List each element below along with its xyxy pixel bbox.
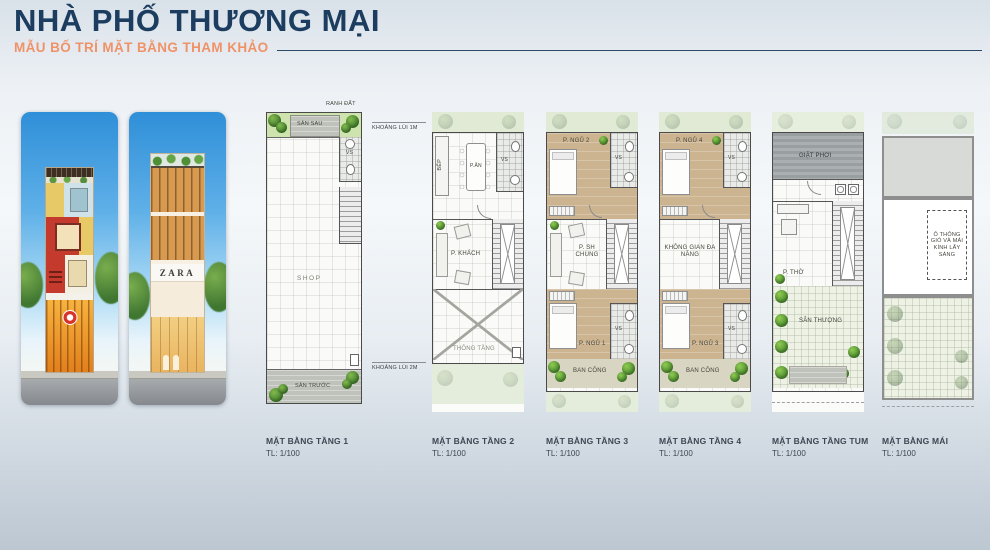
sink-icon bbox=[510, 175, 520, 185]
tree-icon bbox=[437, 370, 453, 386]
shrub-icon bbox=[775, 366, 788, 379]
grass-strip bbox=[546, 112, 638, 132]
room-label: THÔNG TẦNG bbox=[453, 346, 495, 352]
page-subtitle: MẪU BỐ TRÍ MẶT BẰNG THAM KHẢO bbox=[14, 40, 269, 55]
tree-icon bbox=[502, 115, 516, 129]
plan-title: MẶT BẰNG TẦNG 2 bbox=[432, 436, 542, 446]
tree-icon bbox=[729, 115, 743, 129]
grass-strip bbox=[432, 112, 524, 132]
road bbox=[21, 379, 118, 405]
bed bbox=[549, 149, 577, 195]
staircase bbox=[719, 219, 750, 289]
balcony-zone: BAN CÔNG bbox=[660, 359, 750, 388]
bedroom-zone: P. NGỦ 2 VS bbox=[547, 133, 637, 220]
tree-icon bbox=[438, 114, 453, 129]
plan-scale: TL: 1/100 bbox=[546, 449, 656, 458]
wardrobe bbox=[662, 291, 688, 301]
room-label: P. THỜ bbox=[783, 270, 804, 276]
wardrobe bbox=[549, 206, 575, 216]
shrub-icon bbox=[775, 290, 788, 303]
bedroom-zone: P. NGỦ 1 VS bbox=[547, 289, 637, 360]
room-label: VS bbox=[615, 326, 622, 332]
render-photo-zara-building: ZARA bbox=[129, 112, 226, 405]
backyard-zone: SÂN SAU bbox=[267, 113, 361, 138]
tree-icon bbox=[887, 114, 902, 129]
worship-zone: P. THỜ bbox=[773, 201, 863, 287]
plan-caption: MẶT BẰNG TẦNG 4 TL: 1/100 bbox=[659, 436, 769, 458]
staircase bbox=[492, 219, 523, 289]
shopfront-glass bbox=[151, 317, 204, 372]
toilet-icon bbox=[625, 310, 634, 321]
plan-title: MẶT BẰNG MÁI bbox=[882, 436, 990, 446]
shrub-icon bbox=[775, 314, 788, 327]
stair-core bbox=[840, 207, 856, 280]
roof-pergola bbox=[46, 168, 93, 177]
skylight-opening: Ô THÔNG GIÓ VÀ MÁI KÍNH LẤY SÁNG bbox=[927, 210, 967, 280]
room-label: P. NGỦ 2 bbox=[563, 138, 590, 144]
plan-body: Ô THÔNG GIÓ VÀ MÁI KÍNH LẤY SÁNG bbox=[882, 112, 974, 412]
door-arc bbox=[807, 181, 821, 195]
shrub-icon bbox=[848, 346, 860, 358]
room-label: P. NGỦ 3 bbox=[692, 341, 719, 347]
plan-caption: MẶT BẰNG MÁI TL: 1/100 bbox=[882, 436, 990, 458]
wc-room: VS bbox=[496, 133, 523, 192]
room-label: P. NGỦ 1 bbox=[579, 341, 606, 347]
room-label: VS bbox=[728, 155, 735, 161]
plant-icon bbox=[436, 221, 445, 230]
plan-body: SÂN SAU VS SHOP bbox=[266, 112, 362, 402]
room-label: VS bbox=[346, 150, 353, 156]
shrub-icon bbox=[887, 306, 903, 322]
sofa bbox=[550, 233, 562, 277]
plan-caption: MẶT BẰNG TẦNG 3 TL: 1/100 bbox=[546, 436, 656, 458]
plan-caption: MẶT BẰNG TẦNG 1 TL: 1/100 bbox=[266, 436, 376, 458]
room-label: BẾP bbox=[437, 159, 443, 171]
kitchen-dining-zone: BẾP P.ĂN VS bbox=[433, 133, 523, 220]
floor4-glass bbox=[151, 168, 204, 216]
stair-core bbox=[500, 224, 516, 284]
armchair bbox=[568, 271, 585, 286]
grass-strip bbox=[432, 364, 524, 404]
floorplan-tang1: RANH ĐẤT SÂN SAU VS bbox=[258, 100, 430, 470]
bedroom-zone: P. NGỦ 3 VS bbox=[660, 289, 750, 360]
plan-walls: BẾP P.ĂN VS bbox=[432, 132, 524, 364]
zara-sign-text: ZARA bbox=[160, 268, 196, 278]
shrub-icon bbox=[668, 371, 679, 382]
roof-slab-upper bbox=[882, 136, 974, 198]
tree-icon bbox=[616, 115, 630, 129]
road bbox=[129, 379, 226, 405]
tree-icon bbox=[342, 379, 352, 389]
plan-title: MẶT BẰNG TẦNG 4 bbox=[659, 436, 769, 446]
laundry-zone: GIẶT PHƠI bbox=[773, 133, 863, 180]
floor4-facade bbox=[46, 183, 93, 217]
door-arc bbox=[702, 205, 715, 218]
render-photo-red-building bbox=[21, 112, 118, 405]
rooftop-garden bbox=[151, 154, 204, 168]
plan-scale: TL: 1/100 bbox=[432, 449, 542, 458]
setback-annotation: KHOẢNG LÙI 1M bbox=[372, 122, 426, 131]
sink-icon bbox=[737, 344, 747, 354]
balcony-zone: BAN CÔNG bbox=[547, 359, 637, 388]
shop-sign-icon bbox=[62, 310, 77, 325]
terrace-paving bbox=[789, 366, 847, 384]
room-label: P.ĂN bbox=[470, 163, 482, 169]
tree-icon bbox=[552, 394, 566, 408]
plan-title: MẶT BẰNG TẦNG 1 bbox=[266, 436, 376, 446]
grass-strip bbox=[659, 112, 751, 132]
wc-room: VS bbox=[723, 303, 750, 360]
staircase bbox=[832, 201, 863, 286]
plan-walls: GIẶT PHƠI P. THỜ bbox=[772, 132, 864, 392]
floorplan-mai: Ô THÔNG GIÓ VÀ MÁI KÍNH LẤY SÁNG MẶT BẰN… bbox=[875, 100, 980, 470]
tree-icon bbox=[278, 384, 288, 394]
washing-machine-icon bbox=[848, 184, 859, 195]
room-label: VS bbox=[615, 155, 622, 161]
stair-core bbox=[727, 224, 743, 284]
wc-room: VS bbox=[610, 303, 637, 360]
toilet-icon bbox=[738, 310, 747, 321]
plant-icon bbox=[712, 136, 721, 145]
wc-room: VS bbox=[339, 137, 361, 182]
living-zone: P. KHÁCH bbox=[433, 219, 523, 290]
room-label: RANH ĐẤT bbox=[326, 101, 356, 107]
void-zone: THÔNG TẦNG bbox=[433, 289, 523, 360]
plan-scale: TL: 1/100 bbox=[659, 449, 769, 458]
plan-body: P. NGỦ 2 VS P. bbox=[546, 112, 638, 412]
shrub-icon bbox=[555, 371, 566, 382]
room-label: P. NGỦ 4 bbox=[676, 138, 703, 144]
tree-icon bbox=[953, 115, 967, 129]
floor2-facade bbox=[46, 255, 93, 293]
building-facade-zara: ZARA bbox=[151, 154, 204, 372]
toilet-icon bbox=[738, 141, 747, 152]
bed bbox=[662, 303, 690, 349]
chairs bbox=[485, 143, 491, 189]
room-label: SÂN THƯỢNG bbox=[799, 318, 842, 324]
tree-icon bbox=[665, 114, 680, 129]
toilet-icon bbox=[625, 141, 634, 152]
tree-icon bbox=[552, 114, 567, 129]
building-facade-red bbox=[46, 168, 93, 372]
plan-caption: MẶT BẰNG TẦNG 2 TL: 1/100 bbox=[432, 436, 542, 458]
frontyard-zone: SÂN TRƯỚC bbox=[267, 369, 361, 403]
bedroom-zone: P. NGỦ 4 VS bbox=[660, 133, 750, 220]
door-arc bbox=[477, 205, 491, 219]
sink-icon bbox=[345, 139, 355, 149]
staircase bbox=[606, 219, 637, 289]
armchair bbox=[454, 270, 471, 285]
shrub-icon bbox=[730, 372, 740, 382]
tree-icon bbox=[731, 395, 744, 408]
roof-slab-mid: Ô THÔNG GIÓ VÀ MÁI KÍNH LẤY SÁNG bbox=[882, 198, 974, 296]
plan-scale: TL: 1/100 bbox=[882, 449, 990, 458]
sidewalk bbox=[129, 371, 226, 379]
tree-icon bbox=[618, 395, 631, 408]
washing-machine-icon bbox=[835, 184, 846, 195]
floorplan-tang3: P. NGỦ 2 VS P. bbox=[539, 100, 644, 470]
boundary-dash bbox=[772, 402, 864, 403]
room-label: SÂN TRƯỚC bbox=[295, 383, 330, 389]
room-label: SHOP bbox=[297, 275, 321, 282]
page-title: NHÀ PHỐ THƯƠNG MẠI bbox=[14, 4, 982, 39]
plan-body: P. NGỦ 4 VS KHÔNG GIAN ĐA NĂNG bbox=[659, 112, 751, 412]
multipurpose-zone: KHÔNG GIAN ĐA NĂNG bbox=[660, 219, 750, 290]
sofa bbox=[436, 233, 448, 277]
shrub-icon bbox=[955, 376, 968, 389]
door bbox=[350, 354, 359, 366]
shrub-icon bbox=[887, 370, 903, 386]
bed bbox=[662, 149, 690, 195]
toilet-icon bbox=[511, 141, 520, 152]
chairs bbox=[459, 143, 465, 189]
header-rule bbox=[277, 50, 982, 51]
sidewalk bbox=[21, 371, 118, 379]
wardrobe bbox=[662, 206, 688, 216]
floor3-facade bbox=[46, 217, 93, 255]
sink-icon bbox=[624, 172, 634, 182]
toilet-icon bbox=[346, 164, 355, 175]
plan-walls: SÂN SAU VS SHOP bbox=[266, 112, 362, 404]
armchair bbox=[568, 223, 585, 239]
room-label: KHÔNG GIAN ĐA NĂNG bbox=[664, 245, 716, 259]
common-room-zone: P. SH CHUNG bbox=[547, 219, 637, 290]
zara-signboard: ZARA bbox=[151, 264, 204, 282]
wc-room: VS bbox=[610, 133, 637, 188]
room-label: VS bbox=[728, 326, 735, 332]
page: NHÀ PHỐ THƯƠNG MẠI MẪU BỐ TRÍ MẶT BẰNG T… bbox=[0, 0, 990, 550]
plan-caption: MẶT BẰNG TẦNG TUM TL: 1/100 bbox=[772, 436, 882, 458]
shrub-icon bbox=[775, 340, 788, 353]
wardrobe bbox=[549, 291, 575, 301]
grass-strip bbox=[882, 112, 974, 134]
roof-terrace-lower bbox=[882, 296, 974, 400]
header: NHÀ PHỐ THƯƠNG MẠI MẪU BỐ TRÍ MẶT BẰNG T… bbox=[14, 4, 982, 55]
plan-scale: TL: 1/100 bbox=[772, 449, 882, 458]
roof-terrace-zone: SÂN THƯỢNG bbox=[773, 286, 863, 388]
door bbox=[512, 347, 521, 358]
plant-icon bbox=[599, 136, 608, 145]
floorplan-tum: GIẶT PHƠI P. THỜ bbox=[765, 100, 870, 470]
tree-icon bbox=[204, 262, 226, 312]
room-label: GIẶT PHƠI bbox=[799, 153, 832, 159]
sink-icon bbox=[737, 172, 747, 182]
room-label: P. SH CHUNG bbox=[571, 245, 603, 259]
grass-strip bbox=[546, 392, 638, 412]
mannequin bbox=[163, 355, 169, 370]
washer-row bbox=[773, 179, 863, 202]
desk bbox=[781, 219, 797, 235]
shrub-icon bbox=[887, 338, 903, 354]
plan-walls: P. NGỦ 2 VS P. bbox=[546, 132, 638, 392]
dining-table: P.ĂN bbox=[466, 143, 486, 191]
staircase bbox=[339, 187, 361, 244]
plan-body: BẾP P.ĂN VS bbox=[432, 112, 524, 412]
room-label: BAN CÔNG bbox=[573, 368, 607, 374]
room-label: SÂN SAU bbox=[297, 121, 323, 127]
plan-body: GIẶT PHƠI P. THỜ bbox=[772, 112, 864, 412]
boundary-dash bbox=[882, 406, 974, 407]
sink-icon bbox=[624, 344, 634, 354]
stair-core bbox=[614, 224, 630, 284]
plan-walls: P. NGỦ 4 VS KHÔNG GIAN ĐA NĂNG bbox=[659, 132, 751, 392]
plan-title: MẶT BẰNG TẦNG TUM bbox=[772, 436, 882, 446]
door-arc bbox=[589, 205, 602, 218]
room-label: P. KHÁCH bbox=[451, 251, 480, 257]
setback-annotation: KHOẢNG LÙI 2M bbox=[372, 362, 426, 371]
grass-strip bbox=[772, 112, 864, 132]
plant-icon bbox=[550, 221, 559, 230]
plan-title: MẶT BẰNG TẦNG 3 bbox=[546, 436, 656, 446]
bed bbox=[549, 303, 577, 349]
floor3-glass bbox=[151, 216, 204, 264]
shrub-icon bbox=[617, 372, 627, 382]
shrub-icon bbox=[955, 350, 968, 363]
floorplan-tang4: P. NGỦ 4 VS KHÔNG GIAN ĐA NĂNG bbox=[652, 100, 757, 470]
armchair bbox=[454, 223, 472, 239]
wc-room: VS bbox=[723, 133, 750, 188]
tree-icon bbox=[778, 114, 793, 129]
room-label: Ô THÔNG GIÓ VÀ MÁI KÍNH LẤY SÁNG bbox=[930, 232, 964, 258]
tree-icon bbox=[503, 372, 518, 387]
altar-table bbox=[777, 204, 809, 214]
room-label: VS bbox=[501, 157, 508, 163]
floorplan-tang2: BẾP P.ĂN VS bbox=[425, 100, 530, 470]
tree-icon bbox=[341, 123, 351, 133]
plan-scale: TL: 1/100 bbox=[266, 449, 376, 458]
grass-strip bbox=[659, 392, 751, 412]
tree-icon bbox=[276, 122, 287, 133]
shopfront-glass bbox=[46, 300, 93, 372]
tree-icon bbox=[842, 115, 856, 129]
room-label: BAN CÔNG bbox=[686, 368, 720, 374]
tree-icon bbox=[665, 394, 679, 408]
